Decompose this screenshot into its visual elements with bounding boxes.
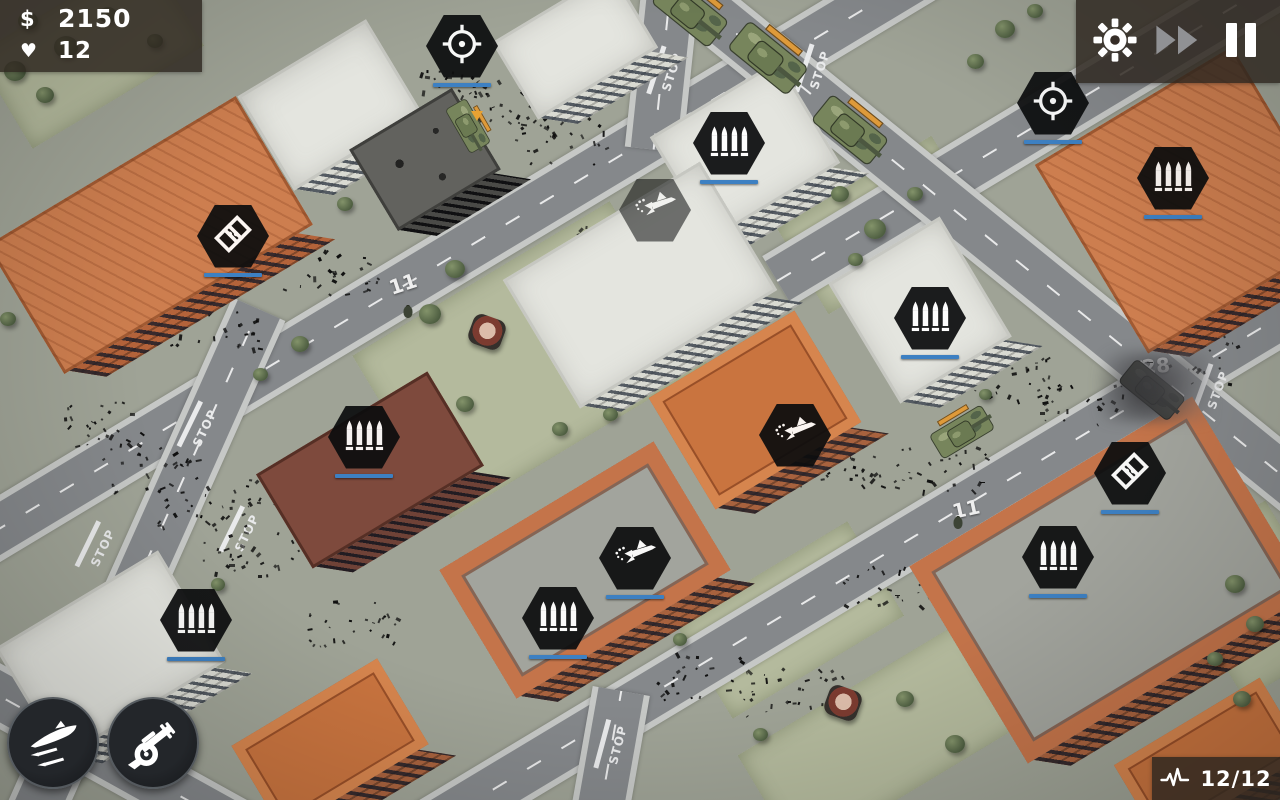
bullets-icon xyxy=(910,300,950,337)
machine-gun-tower-marker[interactable] xyxy=(160,589,232,652)
bullets-icon xyxy=(709,125,749,162)
tower-health-bar xyxy=(901,355,959,359)
pause-button[interactable] xyxy=(1212,9,1270,75)
tower-health-bar xyxy=(529,655,587,659)
money-icon: $ xyxy=(20,7,42,31)
diamond-target-icon xyxy=(1108,449,1152,497)
tree xyxy=(1225,575,1245,593)
diamond-target-icon xyxy=(211,212,255,260)
area-tower-marker[interactable] xyxy=(197,205,269,268)
airstrike-icon xyxy=(24,713,82,774)
tree xyxy=(967,54,984,69)
bullets-icon xyxy=(176,602,216,639)
tower-health-bar xyxy=(1144,215,1202,219)
tower-health-bar xyxy=(204,273,262,277)
heart-icon: ♥ xyxy=(20,40,42,62)
tree xyxy=(445,260,465,278)
machine-gun-tower-marker[interactable] xyxy=(522,587,594,650)
crosshair-icon xyxy=(1031,79,1075,127)
tree xyxy=(419,304,441,324)
tree xyxy=(673,633,687,646)
bullets-icon xyxy=(1153,160,1193,197)
artillery-icon xyxy=(124,713,182,774)
tree xyxy=(945,735,965,753)
tree xyxy=(603,408,618,422)
game-map[interactable]: $ 2150 ♥ 12 xyxy=(0,0,1280,800)
tree xyxy=(848,253,863,267)
missile-icon xyxy=(612,533,658,583)
tower-health-bar xyxy=(700,180,758,184)
tower-health-bar xyxy=(335,474,393,478)
tower-health-bar xyxy=(433,83,491,87)
money-value: 2150 xyxy=(58,4,132,33)
missile-icon xyxy=(772,410,818,460)
tower-health-bar xyxy=(606,595,664,599)
gear-icon xyxy=(1092,17,1138,66)
rocket-tower-marker[interactable] xyxy=(619,179,691,242)
machine-gun-tower-marker[interactable] xyxy=(894,287,966,350)
path-arrow-icon xyxy=(471,111,483,121)
wave-panel: 12/12 xyxy=(1152,757,1280,800)
enemy-soldier xyxy=(404,306,413,318)
lives-value: 12 xyxy=(58,38,92,64)
crosshair-icon xyxy=(440,22,484,70)
fast-forward-icon xyxy=(1154,24,1202,59)
tree xyxy=(253,368,268,382)
enemy-soldier xyxy=(954,517,963,529)
rocket-tower-marker[interactable] xyxy=(599,527,671,590)
area-tower-marker[interactable] xyxy=(1094,442,1166,505)
tree xyxy=(337,197,353,211)
wave-counter: 12/12 xyxy=(1200,767,1271,791)
fast-forward-button[interactable] xyxy=(1149,9,1207,75)
tree xyxy=(864,219,886,239)
tree xyxy=(753,728,768,742)
machine-gun-tower-marker[interactable] xyxy=(1137,147,1209,210)
artillery-button[interactable] xyxy=(107,697,199,789)
machine-gun-tower-marker[interactable] xyxy=(1022,526,1094,589)
tree xyxy=(979,389,992,401)
bullets-icon xyxy=(538,600,578,637)
sniper-tower-marker[interactable] xyxy=(426,15,498,78)
settings-button[interactable] xyxy=(1086,9,1144,75)
bullets-icon xyxy=(344,419,384,456)
tower-health-bar xyxy=(1024,140,1082,144)
tower-health-bar xyxy=(167,657,225,661)
building xyxy=(231,658,428,800)
controls-panel xyxy=(1076,0,1280,83)
machine-gun-tower-marker[interactable] xyxy=(693,112,765,175)
pulse-icon xyxy=(1160,765,1190,793)
tower-health-bar xyxy=(1029,594,1087,598)
tree xyxy=(995,20,1015,38)
bullets-icon xyxy=(1038,539,1078,576)
smoke-effect xyxy=(1100,352,1210,422)
resources-panel: $ 2150 ♥ 12 xyxy=(0,0,202,72)
rocket-tower-marker[interactable] xyxy=(759,404,831,467)
airstrike-button[interactable] xyxy=(7,697,99,789)
machine-gun-tower-marker[interactable] xyxy=(328,406,400,469)
missile-icon xyxy=(632,185,678,235)
tower-health-bar xyxy=(1101,510,1159,514)
tree xyxy=(0,312,16,326)
tree xyxy=(1027,4,1043,18)
pause-icon xyxy=(1224,20,1258,63)
